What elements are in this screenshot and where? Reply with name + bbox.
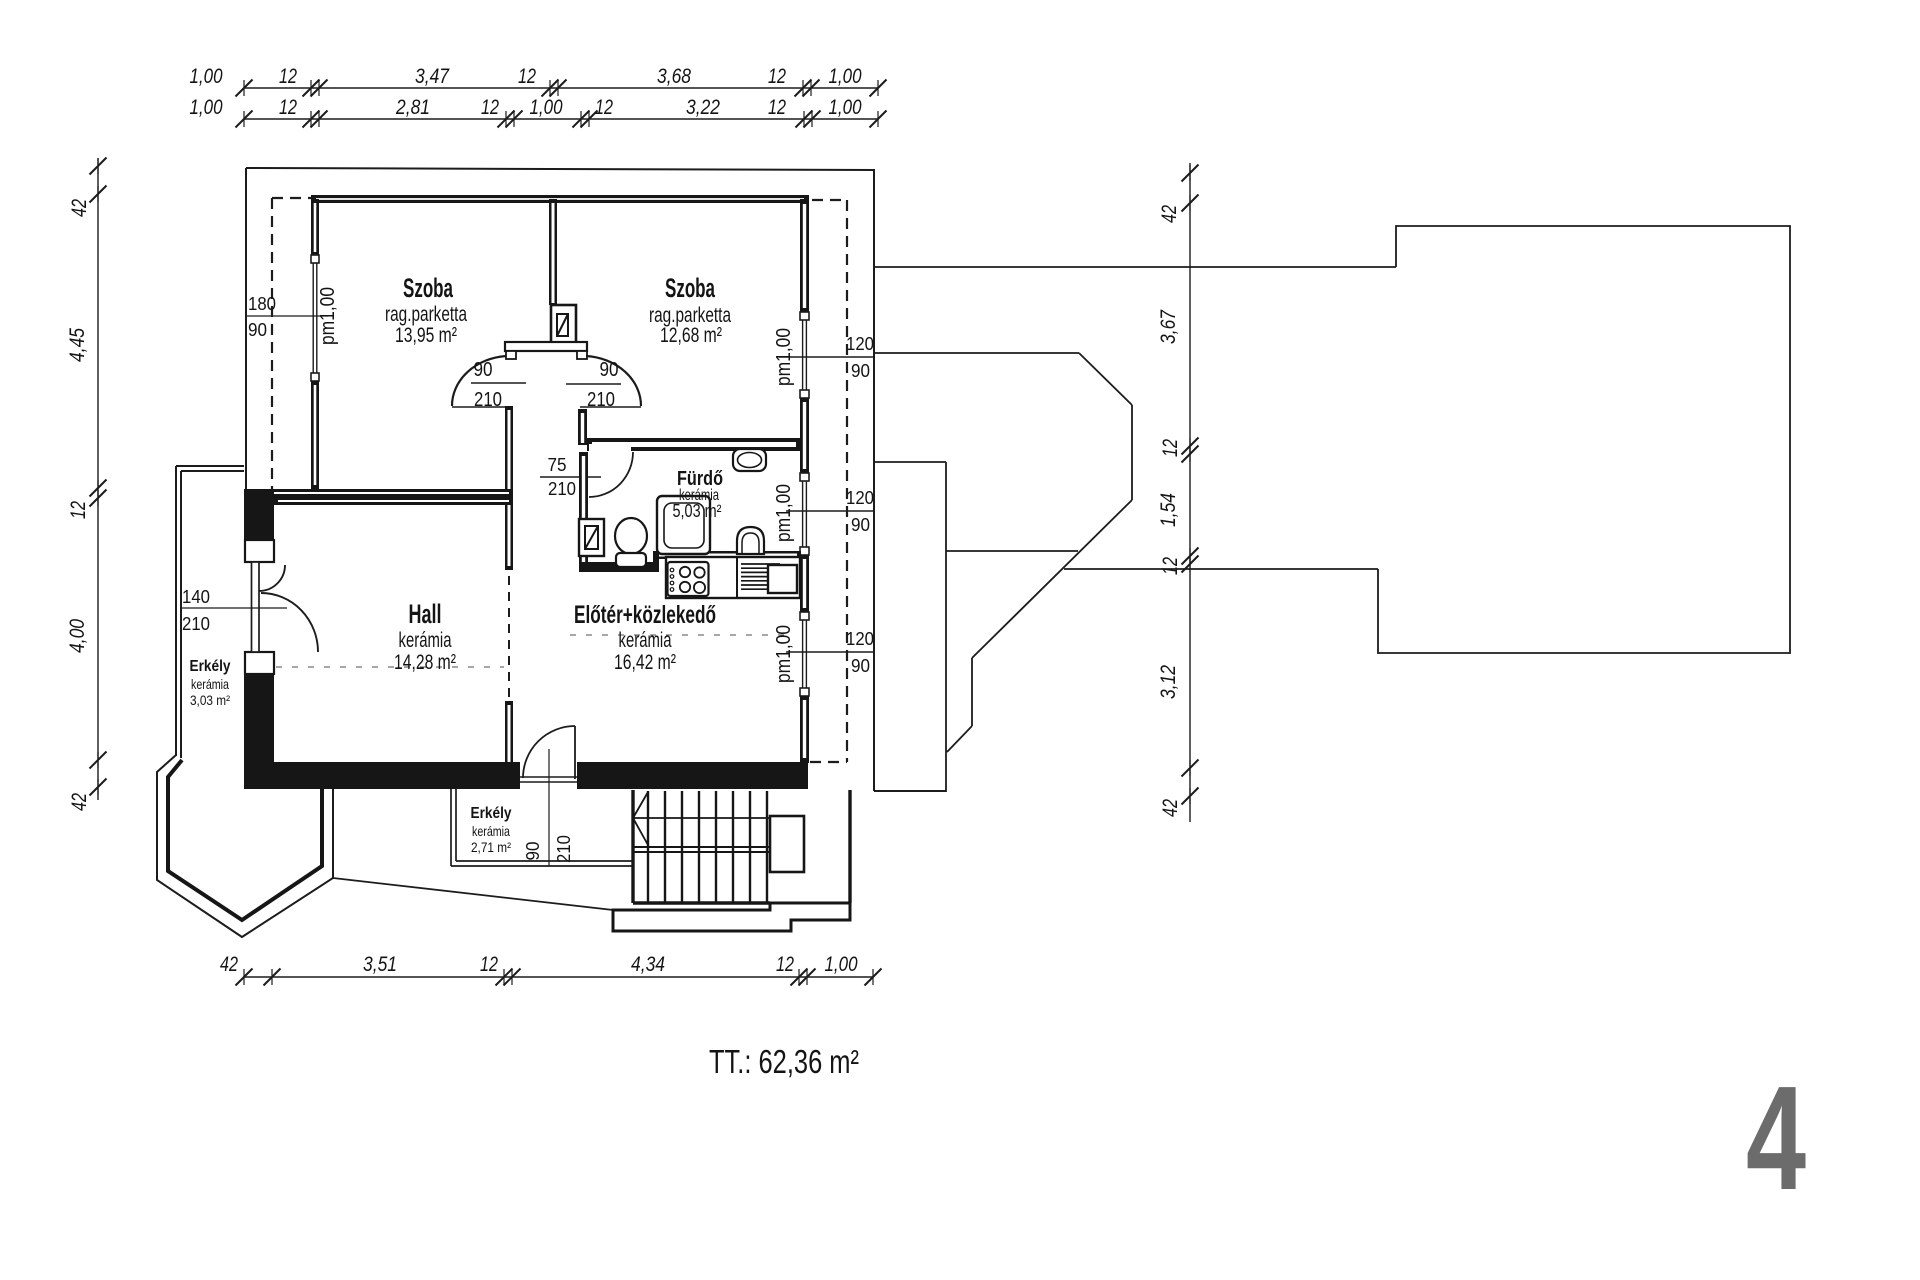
svg-text:pm1,00: pm1,00 <box>773 484 795 542</box>
svg-text:3,12: 3,12 <box>1157 665 1180 699</box>
svg-text:TT.: 62,36 m²: TT.: 62,36 m² <box>709 1043 859 1080</box>
svg-text:pm1,00: pm1,00 <box>773 625 795 683</box>
svg-text:210: 210 <box>548 479 576 499</box>
svg-text:13,95 m²: 13,95 m² <box>395 324 457 347</box>
svg-text:12: 12 <box>279 96 297 119</box>
svg-text:90: 90 <box>851 515 870 535</box>
svg-text:12: 12 <box>768 65 786 88</box>
svg-text:12: 12 <box>518 65 536 88</box>
svg-text:120: 120 <box>846 629 874 649</box>
svg-text:42: 42 <box>1159 799 1182 817</box>
svg-text:12: 12 <box>481 96 499 119</box>
svg-text:16,42 m²: 16,42 m² <box>614 651 676 674</box>
svg-text:2,81: 2,81 <box>395 96 430 119</box>
svg-text:14,28 m²: 14,28 m² <box>394 651 456 674</box>
svg-text:kerámia: kerámia <box>191 676 229 692</box>
svg-text:42: 42 <box>68 793 91 811</box>
svg-text:5,03 m²: 5,03 m² <box>673 501 722 521</box>
svg-text:pm1,00: pm1,00 <box>317 287 339 345</box>
svg-text:kerámia: kerámia <box>472 823 510 839</box>
svg-text:90: 90 <box>851 656 870 676</box>
svg-text:90: 90 <box>851 361 870 381</box>
svg-text:1,54: 1,54 <box>1157 493 1180 527</box>
svg-text:Erkély: Erkély <box>471 805 512 822</box>
svg-text:1,00: 1,00 <box>190 65 223 88</box>
svg-text:Erkély: Erkély <box>190 658 231 675</box>
svg-text:12: 12 <box>595 96 613 119</box>
svg-text:12: 12 <box>480 953 498 976</box>
svg-text:180: 180 <box>248 294 276 314</box>
svg-text:12: 12 <box>776 953 794 976</box>
svg-text:90: 90 <box>600 359 619 381</box>
svg-text:12: 12 <box>1159 557 1182 575</box>
svg-text:4,00: 4,00 <box>66 619 89 653</box>
svg-text:1,00: 1,00 <box>190 96 223 119</box>
svg-text:12: 12 <box>279 65 297 88</box>
svg-text:90: 90 <box>248 320 267 340</box>
svg-text:12: 12 <box>1159 439 1182 457</box>
svg-text:75: 75 <box>548 455 567 475</box>
svg-text:3,51: 3,51 <box>363 953 397 976</box>
svg-text:90: 90 <box>474 359 493 381</box>
svg-text:1,00: 1,00 <box>829 65 862 88</box>
svg-text:3,67: 3,67 <box>1157 309 1180 344</box>
svg-text:pm1,00: pm1,00 <box>773 328 795 386</box>
svg-text:Szoba: Szoba <box>665 273 716 303</box>
svg-text:Hall: Hall <box>409 599 442 629</box>
svg-text:4: 4 <box>1746 1057 1806 1221</box>
svg-text:210: 210 <box>554 835 574 863</box>
svg-text:3,68: 3,68 <box>657 65 691 88</box>
svg-text:42: 42 <box>220 953 238 976</box>
svg-text:1,00: 1,00 <box>530 96 563 119</box>
svg-text:rag.parketta: rag.parketta <box>385 303 467 326</box>
svg-text:kerámia: kerámia <box>399 629 452 652</box>
svg-text:12,68 m²: 12,68 m² <box>660 324 722 347</box>
svg-text:12: 12 <box>67 501 90 519</box>
svg-text:Előtér+közlekedő: Előtér+közlekedő <box>574 601 716 629</box>
svg-text:210: 210 <box>587 389 615 411</box>
svg-text:4,34: 4,34 <box>631 953 665 976</box>
svg-text:140: 140 <box>182 587 210 607</box>
svg-text:3,47: 3,47 <box>415 65 450 88</box>
svg-text:42: 42 <box>68 199 91 217</box>
svg-text:3,03 m²: 3,03 m² <box>190 692 230 708</box>
svg-text:kerámia: kerámia <box>619 629 672 652</box>
svg-text:12: 12 <box>768 96 786 119</box>
svg-text:1,00: 1,00 <box>825 953 858 976</box>
svg-text:2,71 m²: 2,71 m² <box>471 839 511 855</box>
svg-text:120: 120 <box>846 334 874 354</box>
svg-text:Szoba: Szoba <box>403 273 454 303</box>
svg-text:210: 210 <box>182 614 210 634</box>
svg-text:120: 120 <box>846 488 874 508</box>
svg-text:90: 90 <box>523 842 543 861</box>
svg-text:3,22: 3,22 <box>686 96 720 119</box>
svg-text:4,45: 4,45 <box>66 328 89 362</box>
svg-text:1,00: 1,00 <box>829 96 862 119</box>
svg-text:42: 42 <box>1158 205 1181 223</box>
svg-text:210: 210 <box>474 389 502 411</box>
